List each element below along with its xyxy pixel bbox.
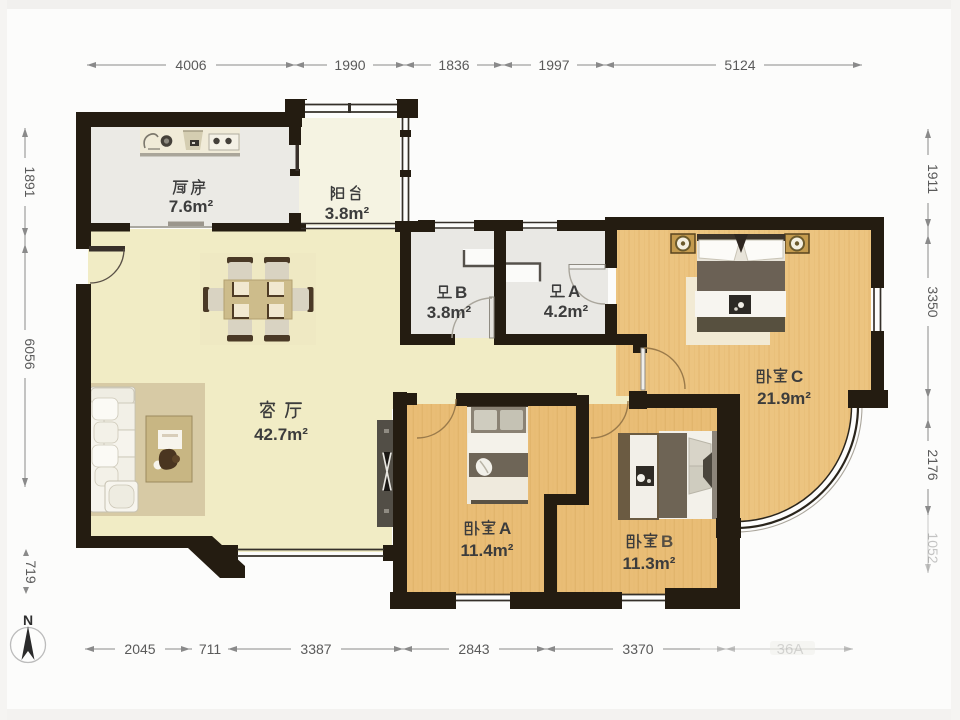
svg-text:3350: 3350 [925, 286, 941, 317]
svg-text:3387: 3387 [300, 641, 331, 657]
svg-text:C: C [791, 367, 803, 386]
svg-text:711: 711 [199, 641, 222, 657]
svg-text:1891: 1891 [22, 166, 38, 197]
svg-text:3370: 3370 [622, 641, 653, 657]
svg-text:11.3m²: 11.3m² [623, 554, 676, 573]
svg-text:B: B [455, 283, 467, 302]
svg-text:7.6m²: 7.6m² [169, 197, 214, 216]
svg-text:1836: 1836 [438, 57, 469, 73]
svg-text:11.4m²: 11.4m² [461, 541, 514, 560]
svg-text:2045: 2045 [124, 641, 155, 657]
svg-text:4.2m²: 4.2m² [544, 302, 589, 321]
svg-text:6056: 6056 [22, 338, 38, 369]
svg-text:1990: 1990 [334, 57, 365, 73]
svg-text:B: B [661, 532, 673, 551]
svg-text:A: A [499, 519, 511, 538]
svg-text:5124: 5124 [724, 57, 755, 73]
svg-text:2843: 2843 [458, 641, 489, 657]
svg-text:1911: 1911 [925, 164, 941, 194]
svg-text:1997: 1997 [538, 57, 569, 73]
svg-text:3.8m²: 3.8m² [325, 204, 370, 223]
svg-text:N: N [23, 612, 33, 628]
svg-text:21.9m²: 21.9m² [757, 389, 811, 408]
svg-text:2176: 2176 [925, 449, 941, 480]
svg-text:42.7m²: 42.7m² [254, 425, 308, 444]
svg-text:4006: 4006 [175, 57, 206, 73]
svg-text:A: A [568, 282, 580, 301]
svg-text:3.8m²: 3.8m² [427, 303, 472, 322]
svg-text:719: 719 [23, 560, 39, 584]
svg-text:1052: 1052 [925, 532, 941, 563]
